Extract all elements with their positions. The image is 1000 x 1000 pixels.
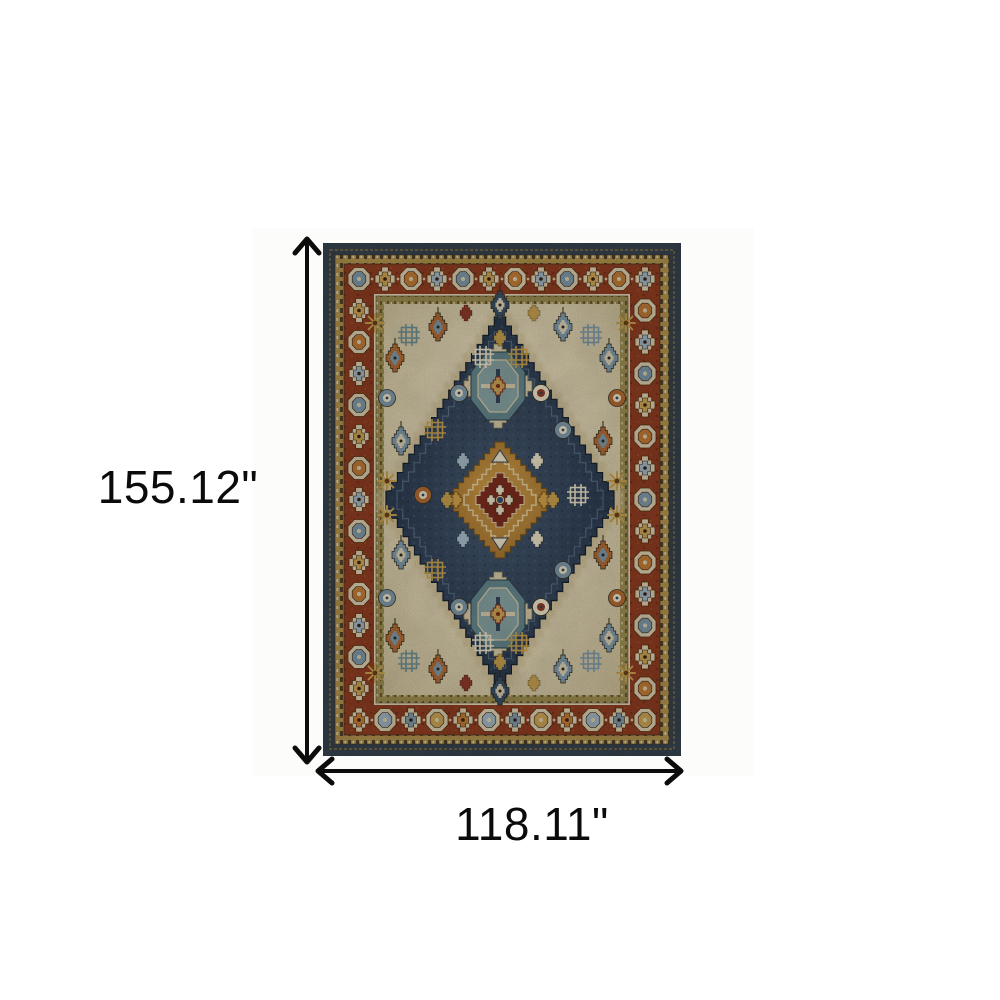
rug-product-image <box>323 243 681 756</box>
rug-shading-texture <box>323 243 681 756</box>
rug-weave <box>323 243 681 756</box>
width-dimension-label: 118.11" <box>412 801 652 847</box>
dimension-figure: 155.12" 118.11" <box>0 0 1000 1000</box>
height-dimension-label: 155.12" <box>58 464 298 510</box>
